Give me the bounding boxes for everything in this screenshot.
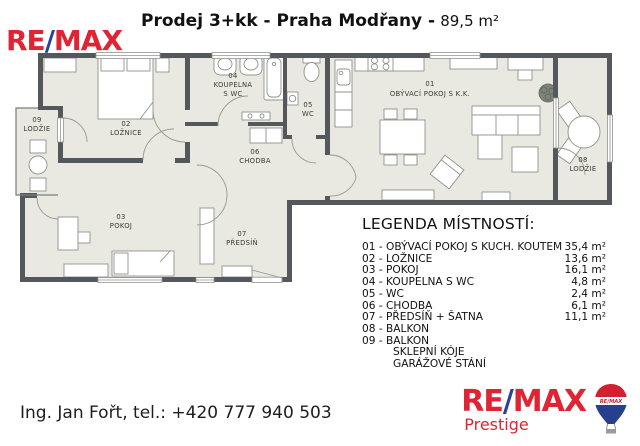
room-label-05: 05 WC: [302, 101, 314, 118]
chair-icon: [404, 109, 417, 119]
wardrobe-icon: [44, 58, 76, 72]
remax-wordmark: RE/MAX: [461, 387, 586, 417]
legend-item-area: [556, 336, 606, 348]
wall: [185, 53, 190, 110]
wall: [58, 106, 63, 118]
desk-chair-icon: [518, 70, 532, 80]
wall: [607, 162, 612, 205]
svg-text:08: 08: [578, 156, 587, 164]
wall: [20, 193, 25, 282]
balloon-label: RE/MAX: [600, 399, 624, 405]
svg-text:09: 09: [32, 116, 41, 124]
pillow-icon: [114, 253, 128, 274]
legend-item-label: GARÁŽOVÉ STÁNÍ: [362, 359, 556, 371]
window: [58, 118, 64, 142]
wall: [283, 135, 292, 139]
remax-logo-slash: /: [503, 384, 513, 419]
svg-text:06: 06: [250, 148, 259, 156]
wall: [185, 142, 190, 162]
legend-item-area: 35,4 m²: [562, 242, 606, 254]
svg-text:07: 07: [237, 230, 246, 238]
prestige-label: Prestige: [464, 417, 586, 433]
chair-icon: [384, 155, 397, 165]
legend-items: 01 - OBÝVACÍ POKOJ S KUCH. KOUTEM35,4 m²…: [362, 242, 606, 371]
wall: [58, 158, 143, 163]
wall: [325, 53, 330, 155]
wall: [283, 53, 287, 139]
chair-icon: [404, 155, 417, 165]
legend-item-label: 01 - OBÝVACÍ POKOJ S KUCH. KOUTEM: [362, 242, 562, 254]
legend-title: LEGENDA MÍSTNOSTÍ:: [362, 215, 606, 233]
remax-logo-max: MAX: [513, 384, 586, 419]
wall: [185, 122, 218, 126]
floorplan-flyer: RE/MAX Prodej 3+kk - Praha Modřany - 89,…: [0, 0, 640, 446]
svg-text:03: 03: [116, 213, 125, 221]
title-area: 89,5 m²: [440, 12, 499, 30]
wall: [287, 200, 292, 282]
chair-icon: [384, 109, 397, 119]
balcony-table-icon: [29, 156, 47, 174]
coffee-table-icon: [512, 147, 538, 172]
legend-item: 08 - BALKON: [362, 324, 606, 336]
remax-balloon-icon: RE/MAX: [592, 383, 630, 437]
svg-text:02: 02: [121, 120, 130, 128]
stove-icon: [355, 56, 424, 71]
kitchen-counter-icon: [335, 60, 352, 127]
desk-chair-icon: [78, 232, 90, 243]
toilet-icon: [303, 56, 320, 82]
svg-text:LODŽIE: LODŽIE: [570, 164, 597, 173]
window: [212, 53, 270, 59]
nightstand-icon: [156, 58, 169, 72]
legend: LEGENDA MÍSTNOSTÍ: 01 - OBÝVACÍ POKOJ S …: [362, 215, 606, 371]
title-main: Prodej 3+kk - Praha Modřany -: [141, 11, 435, 31]
balcony-chair-icon: [30, 178, 46, 191]
svg-text:WC: WC: [302, 110, 314, 118]
legend-item-area: 11,1 m²: [556, 312, 606, 324]
svg-text:PŘEDSÍŇ: PŘEDSÍŇ: [226, 238, 258, 247]
balcony-table-icon: [568, 116, 600, 148]
svg-text:LODŽIE: LODŽIE: [24, 124, 51, 133]
hall-cabinet-icon: [250, 128, 282, 143]
svg-text:01: 01: [425, 80, 434, 88]
svg-text:05: 05: [303, 101, 312, 109]
bathtub-icon: [264, 55, 284, 100]
contact-info: Ing. Jan Fořt, tel.: +420 777 940 503: [20, 403, 332, 423]
shoe-cabinet-icon: [222, 266, 252, 277]
legend-item: 05 - WC2,4 m²: [362, 289, 606, 301]
legend-item: 01 - OBÝVACÍ POKOJ S KUCH. KOUTEM35,4 m²: [362, 242, 606, 254]
svg-text:CHODBA: CHODBA: [239, 157, 271, 165]
legend-item-label: 05 - WC: [362, 289, 556, 301]
double-bed-icon: [98, 55, 153, 119]
balcony-chair-icon: [30, 140, 46, 153]
kitchen-sink-icon: [337, 69, 350, 85]
wall: [325, 196, 330, 205]
svg-text:S WC: S WC: [223, 90, 242, 98]
window: [98, 278, 162, 283]
pillow-icon: [101, 58, 124, 71]
legend-item-area: [556, 324, 606, 336]
legend-item-area: [556, 359, 606, 371]
pillow-icon: [127, 58, 150, 71]
wall: [38, 53, 43, 110]
window: [430, 53, 480, 59]
legend-item-label: 08 - BALKON: [362, 324, 556, 336]
svg-text:LOŽNICE: LOŽNICE: [110, 128, 142, 137]
svg-text:KOUPELNA: KOUPELNA: [214, 81, 253, 89]
window: [196, 278, 214, 283]
wall: [553, 53, 558, 98]
cabinet-icon: [64, 264, 108, 277]
svg-text:POKOJ: POKOJ: [110, 222, 132, 230]
balcony9-furniture: [29, 140, 47, 191]
svg-text:OBÝVACÍ POKOJ S K.K.: OBÝVACÍ POKOJ S K.K.: [390, 89, 470, 98]
balloon-top: [592, 383, 630, 397]
page-title: Prodej 3+kk - Praha Modřany - 89,5 m²: [0, 11, 640, 31]
window: [554, 98, 559, 148]
legend-item-area: [556, 347, 606, 359]
wall: [553, 148, 558, 203]
tv-bench-icon: [382, 190, 434, 200]
legend-item: GARÁŽOVÉ STÁNÍ: [362, 359, 606, 371]
balloon-basket: [606, 429, 616, 434]
window: [96, 53, 160, 59]
corner-sink-icon: [287, 92, 298, 105]
wall: [287, 200, 612, 205]
remax-logo-re: RE: [461, 384, 503, 419]
desk-icon: [58, 217, 78, 250]
remax-prestige-logo: RE/MAX Prestige RE/MAX: [461, 383, 630, 437]
tv-bench-icon: [482, 192, 510, 201]
svg-text:04: 04: [228, 72, 237, 80]
balloon-bottom: [592, 405, 630, 427]
washer-icon: [242, 112, 270, 120]
hall-wardrobe-icon: [200, 208, 214, 264]
wall: [607, 53, 612, 115]
window: [608, 115, 613, 162]
remax-prestige-text: RE/MAX Prestige: [461, 387, 586, 433]
single-bed-icon: [112, 251, 174, 276]
legend-item-area: 2,4 m²: [556, 289, 606, 301]
wall: [248, 122, 287, 126]
